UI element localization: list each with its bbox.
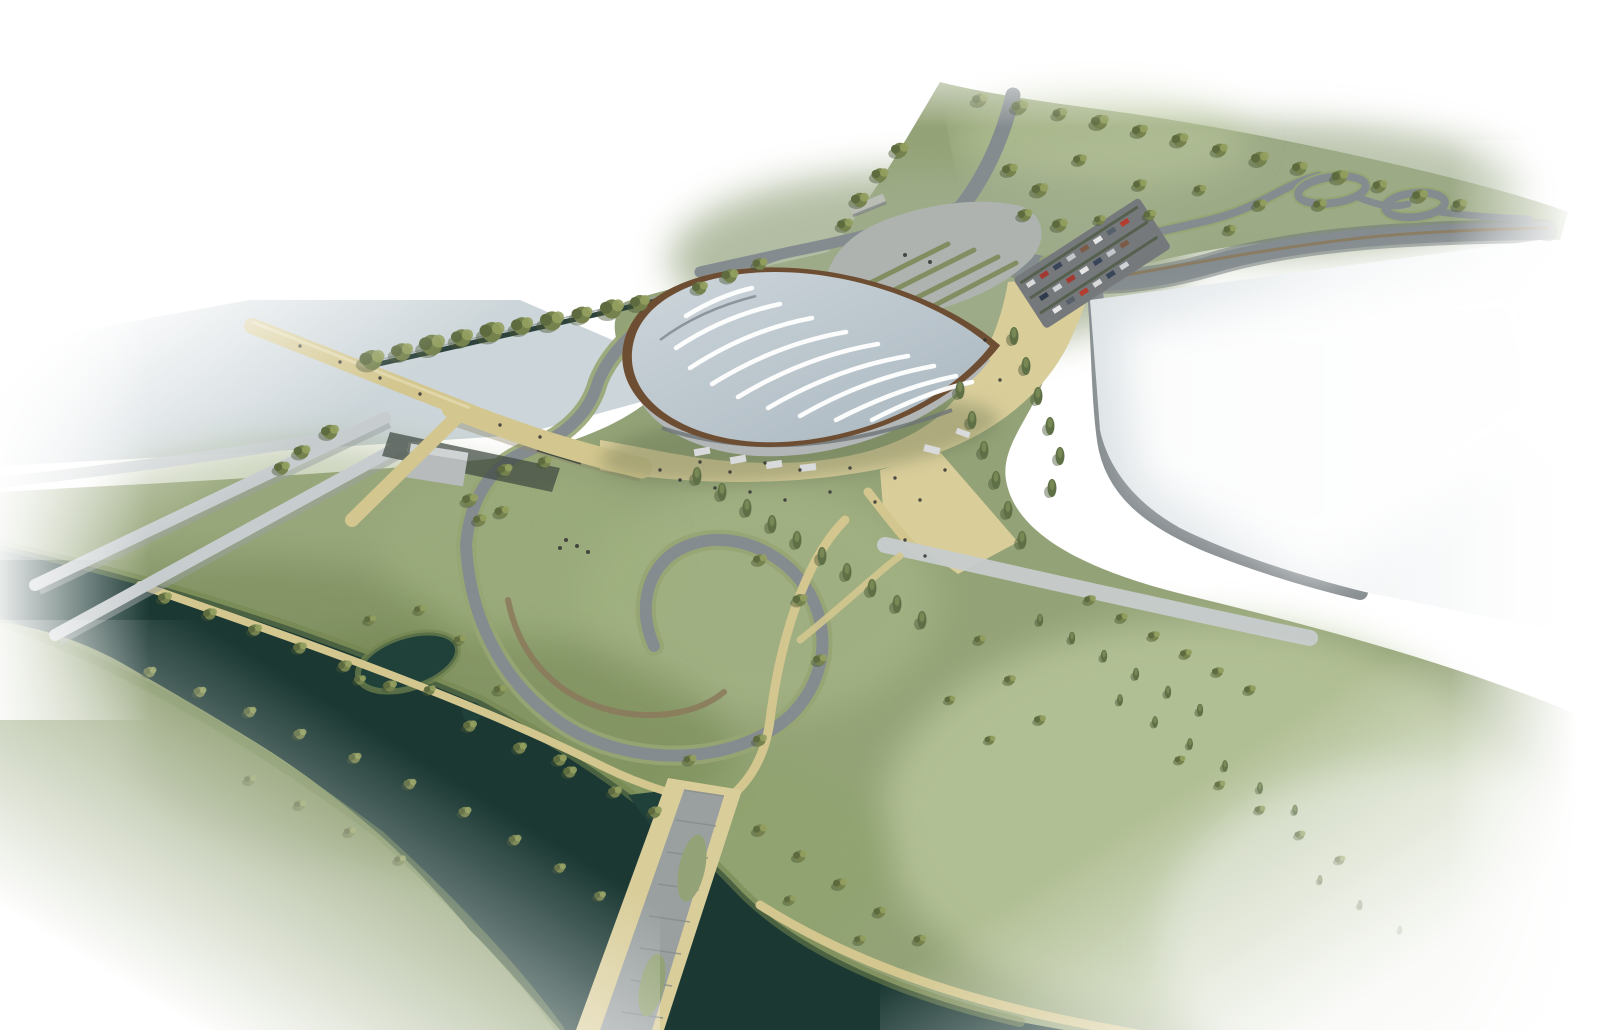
aerial-rendering — [0, 0, 1600, 1030]
site-plan-rendering — [0, 0, 1600, 1030]
